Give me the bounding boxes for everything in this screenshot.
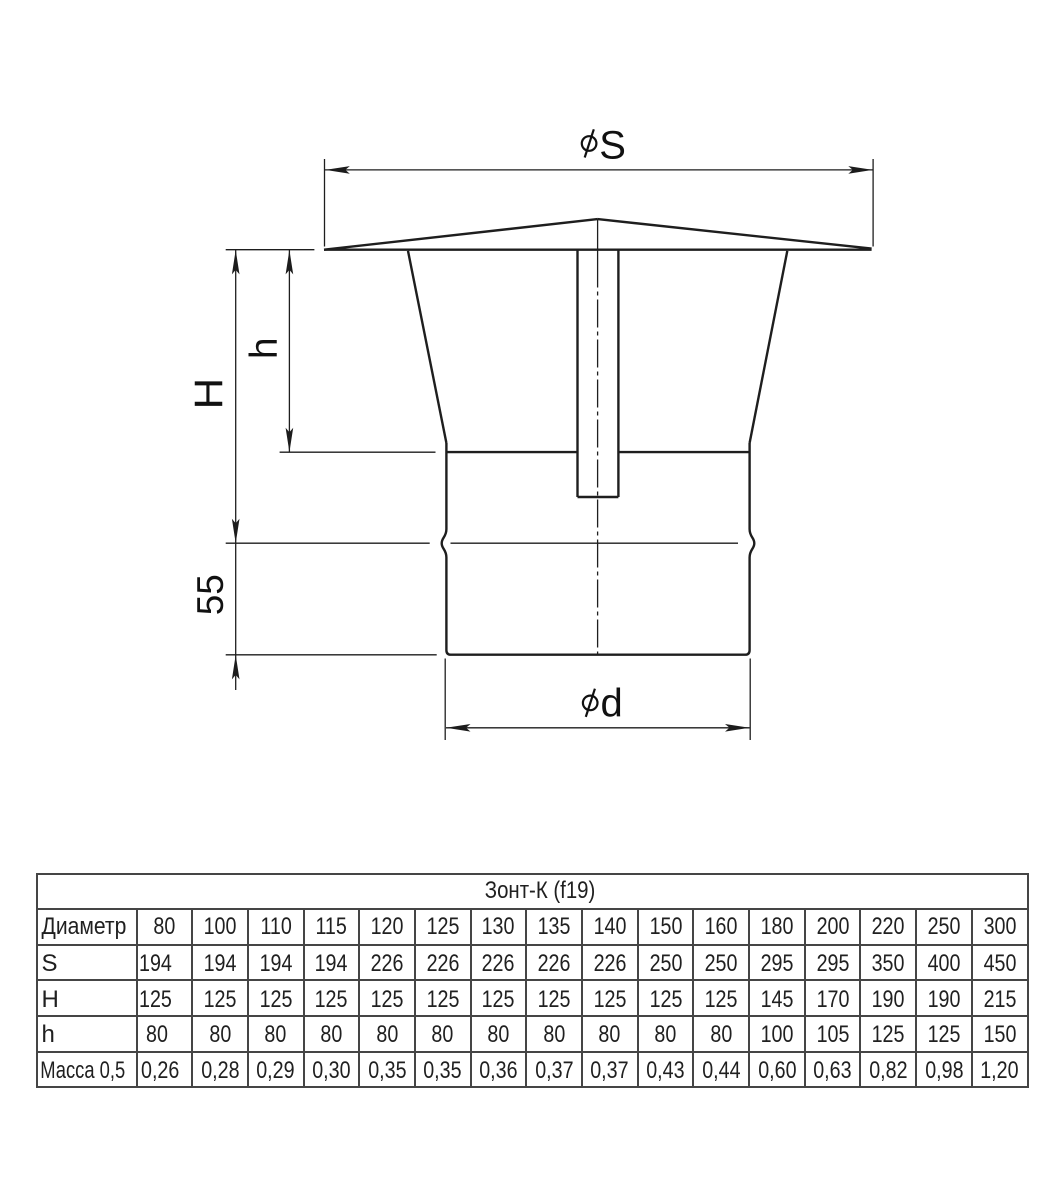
svg-text:H: H [186,378,231,410]
svg-text:d: d [601,682,623,726]
svg-text:S: S [599,124,626,168]
svg-text:h: h [243,337,286,359]
svg-text:55: 55 [190,574,231,615]
